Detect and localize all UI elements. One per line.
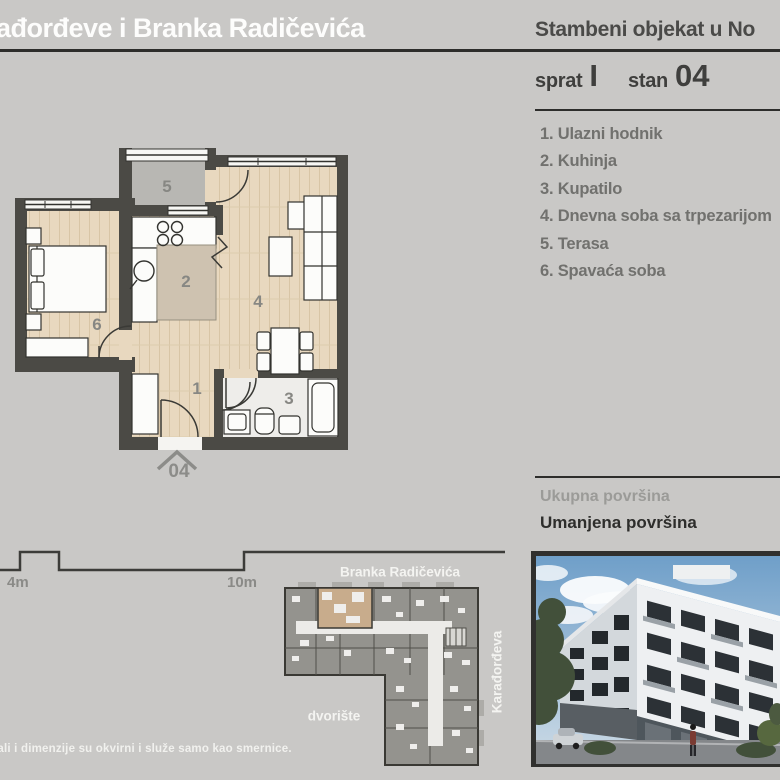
room-legend: 1. Ulazni hodnik 2. Kuhinja 3. Kupatilo … xyxy=(540,121,772,285)
building-title: Stambeni objekat u No xyxy=(535,18,780,42)
project-title: ađorđeve i Branka Radičevića xyxy=(0,13,365,44)
floor-value: I xyxy=(589,62,598,91)
plan-room-number-2: 2 xyxy=(181,272,190,292)
unit-info: sprat I stan 04 xyxy=(535,62,709,91)
header-divider xyxy=(0,49,780,52)
street-label-right: Karađorđeva xyxy=(490,631,505,714)
area-divider xyxy=(535,476,780,478)
floor-label: sprat xyxy=(535,71,582,91)
scale-label-10m: 10m xyxy=(227,574,257,591)
total-area-label: Ukupna površina xyxy=(540,488,670,506)
room-list-item: 6. Spavaća soba xyxy=(540,258,772,285)
room-list-item: 1. Ulazni hodnik xyxy=(540,121,772,148)
room-list-item: 4. Dnevna soba sa trpezarijom xyxy=(540,203,772,230)
scale-label-4m: 4m xyxy=(7,574,29,591)
entrance-number: 04 xyxy=(168,461,189,483)
unit-divider xyxy=(535,109,780,111)
room-list-item: 5. Terasa xyxy=(540,231,772,258)
room-list-item: 2. Kuhinja xyxy=(540,148,772,175)
floor-plan xyxy=(15,148,348,469)
plan-room-number-6: 6 xyxy=(92,315,101,335)
plan-room-number-1: 1 xyxy=(192,379,201,399)
courtyard-label: dvorište xyxy=(308,709,361,724)
apartment-value: 04 xyxy=(675,62,709,91)
reduced-area-label: Umanjena površina xyxy=(540,513,697,533)
site-plan xyxy=(285,582,484,765)
artwork-canvas xyxy=(0,0,780,780)
street-label-top: Branka Radičevića xyxy=(340,565,460,580)
plan-room-number-4: 4 xyxy=(253,292,262,312)
apartment-label: stan xyxy=(628,71,668,91)
plan-room-number-5: 5 xyxy=(162,177,171,197)
building-photo xyxy=(520,551,780,780)
room-list-item: 3. Kupatilo xyxy=(540,176,772,203)
plan-room-number-3: 3 xyxy=(284,389,293,409)
disclaimer-text: jali i dimenzije su okvirni i služe samo… xyxy=(0,743,292,755)
page: ađorđeve i Branka Radičevića Stambeni ob… xyxy=(0,0,780,780)
